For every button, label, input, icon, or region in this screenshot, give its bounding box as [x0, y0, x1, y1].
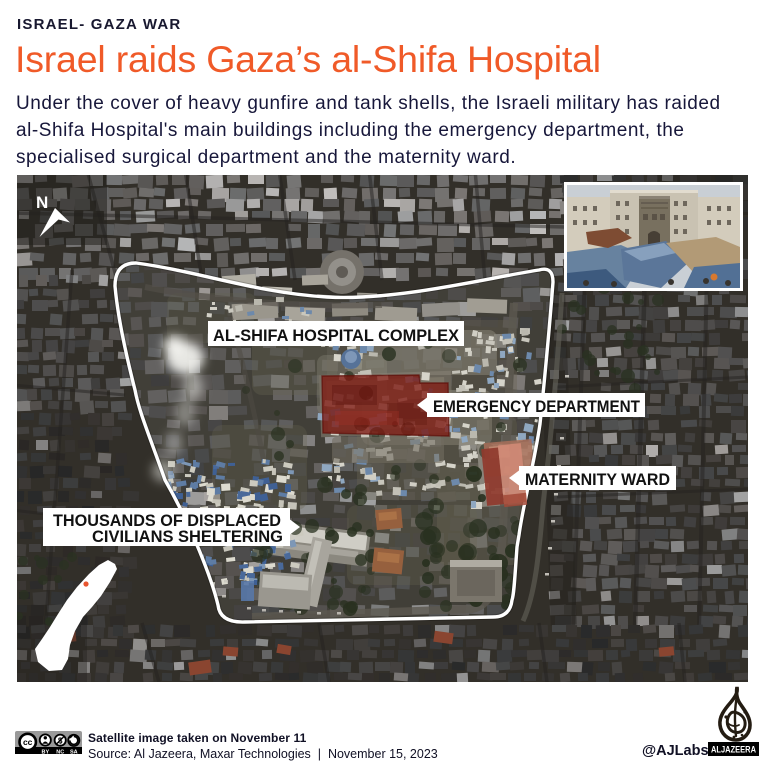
svg-text:SA: SA — [70, 749, 78, 755]
svg-text:N: N — [36, 193, 48, 212]
svg-text:AL-SHIFA HOSPITAL COMPLEX: AL-SHIFA HOSPITAL COMPLEX — [213, 327, 459, 345]
svg-text:NC: NC — [56, 749, 64, 755]
svg-text:MATERNITY WARD: MATERNITY WARD — [525, 471, 670, 489]
svg-text:cc: cc — [23, 737, 33, 747]
svg-text:BY: BY — [41, 749, 49, 755]
svg-text:CIVILIANS SHELTERING: CIVILIANS SHELTERING — [92, 528, 283, 546]
svg-text:EMERGENCY DEPARTMENT: EMERGENCY DEPARTMENT — [433, 398, 640, 416]
svg-text:ALJAZEERA: ALJAZEERA — [711, 745, 756, 755]
